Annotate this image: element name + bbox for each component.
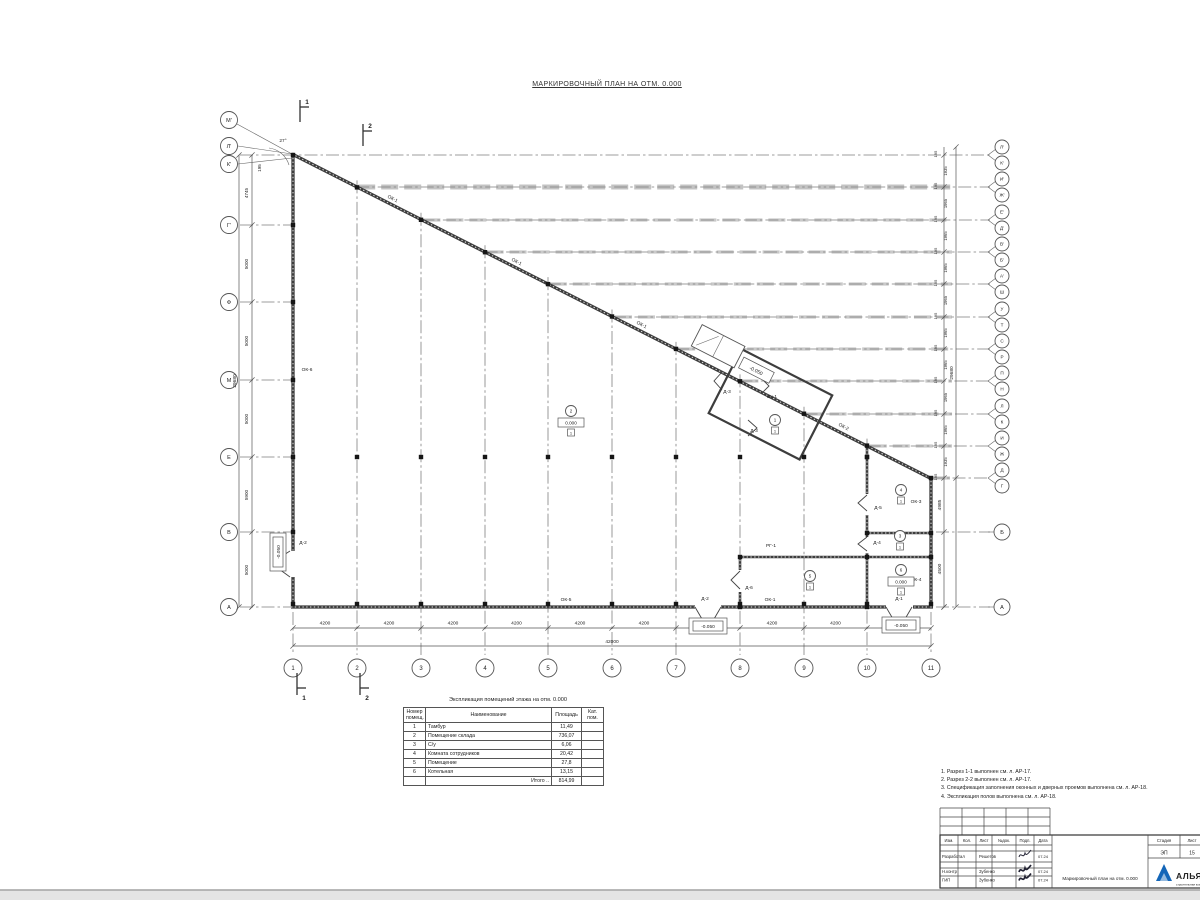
dim-label: 4200 (639, 621, 650, 627)
axis-bubble: Л' (1000, 145, 1004, 150)
column-header: Кат. пом. (582, 708, 604, 723)
table-row: 2Помещение склада736,07 (404, 732, 604, 741)
opening-mark: РГ-1 (766, 543, 776, 549)
opening-mark: Д-6 (745, 585, 753, 591)
opening-mark: Д-2 (701, 596, 709, 602)
stamp-stage-label: Стадия (1157, 838, 1171, 843)
table-cell: 13,15 (552, 768, 582, 777)
stamp-date: 07.24 (1038, 854, 1049, 859)
dim-label: 4200 (384, 621, 395, 627)
axis-bubble: Е' (1000, 210, 1004, 215)
axis-bubble: А' (1000, 274, 1004, 279)
stamp-stage-value: ЭП (1160, 851, 1168, 857)
signature (1019, 874, 1031, 881)
opening-mark: Вн-1 (767, 394, 777, 400)
opening-mark: Д-4 (873, 540, 881, 546)
vestibule: -0.050 (668, 325, 834, 460)
stamp-doc-name: Маркировочный план на отм. 0.000 (1062, 875, 1138, 881)
stamp-name: Зубенко (979, 878, 996, 883)
dim-label: 195 (933, 150, 938, 157)
axis-bubble: Л (1000, 404, 1003, 409)
table-cell (582, 750, 604, 759)
table-cell: 1 (404, 723, 426, 732)
table-cell: 2 (404, 732, 426, 741)
angle-label: 27° (279, 138, 286, 144)
dim-label: 195 (933, 215, 938, 222)
table-cell: С/у (426, 741, 552, 750)
axis-bubble: Б' (1000, 258, 1004, 263)
stamp-header: Лист (979, 838, 988, 843)
dim-label: 195 (257, 164, 262, 172)
mark-labels: ОК-1ОК-1ОК-1ОК-2ОК-3ОК-4ОК-5ОК-1ОК-6РГ-1… (299, 194, 921, 603)
dim-label: 5900 (244, 489, 249, 500)
dim-label: 195 (933, 376, 938, 383)
table-cell: 11,49 (552, 723, 582, 732)
table-cell: 814,99 (552, 777, 582, 786)
dim-label: 195 (933, 182, 938, 189)
table-cell: Итого .. (426, 777, 552, 786)
table-cell: 27,8 (552, 759, 582, 768)
dim-label: 195 (933, 441, 938, 448)
axis-bubble: П (1000, 371, 1003, 376)
room-schedule-table: Номер помещ.НаименованиеПлощадьКат. пом.… (403, 707, 604, 786)
table-cell (582, 768, 604, 777)
notes-block: 1. Разрез 1-1 выполнен см. л. АР-17.2. Р… (941, 768, 1193, 801)
dim-label: 195 (933, 279, 938, 286)
signature (1019, 865, 1031, 872)
table-row: 4Комната сотрудников20,42 (404, 750, 604, 759)
dim-total: 42000 (605, 639, 619, 645)
stamp-header: Кол. (963, 838, 971, 843)
dim-label: 195 (933, 409, 938, 416)
elevation-mark: -0.050 (701, 624, 715, 630)
table-cell (582, 723, 604, 732)
dim-label: 195 (933, 344, 938, 351)
axis-bubble: К' (1000, 161, 1004, 166)
table-cell: 6,06 (552, 741, 582, 750)
opening-mark: Д-1 (895, 596, 903, 602)
table-cell: 4 (404, 750, 426, 759)
opening-mark: ОК-5 (561, 597, 572, 603)
axis-bubble: Т (1001, 323, 1004, 328)
table-cell: Тамбур (426, 723, 552, 732)
table-cell (582, 777, 604, 786)
opening-mark: Д-2 (299, 540, 307, 546)
dim-label: 195 (933, 473, 938, 480)
dim-label: 195 (933, 247, 938, 254)
axis-bubble: И (1000, 436, 1003, 441)
dim-total: 29680 (949, 366, 955, 380)
opening-mark: Д-5 (874, 505, 882, 511)
table-cell: 6 (404, 768, 426, 777)
section-number: 2 (365, 695, 369, 702)
axis-bubble: К (1001, 420, 1004, 425)
title-block: Изм.Кол.Лист№док.Подп.ДатаРазработалРеше… (940, 808, 1200, 888)
column-header: Номер помещ. (404, 708, 426, 723)
room-schedule-title: Экспликация помещений этажа на отм. 0.00… (403, 697, 613, 703)
axis-bubble: Б (1000, 530, 1004, 536)
elevation-mark: -0.050 (894, 623, 908, 629)
dim-label: 5000 (244, 335, 249, 346)
dim-label: 4200 (511, 621, 522, 627)
drawing-sheet: Л'К'195И'Ж'195Е'Д'195В'Б'195А'Ш195УТ195С… (0, 0, 1200, 900)
section-number: 2 (368, 123, 372, 130)
axis-bubble: М' (226, 118, 232, 124)
note-line: 3. Спецификация заполнения оконных и две… (941, 784, 1193, 792)
page-title: МАРКИРОВОЧНЫЙ ПЛАН НА ОТМ. 0.000 (457, 81, 757, 88)
stamp-role: ГИП (942, 878, 950, 883)
axis-bubble: В (227, 530, 231, 536)
axis-bubble: Е (227, 455, 231, 461)
stamp-header: Изм. (945, 838, 954, 843)
dim-label: 4200 (575, 621, 586, 627)
table-header: Номер помещ.НаименованиеПлощадьКат. пом. (404, 708, 604, 723)
axis-bubble: К' (227, 162, 231, 168)
opening-mark: Д-3 (723, 389, 731, 395)
axis-grid-rows: Л'К'195И'Ж'195Е'Д'195В'Б'195А'Ш195УТ195С… (240, 140, 1009, 493)
stamp-role: Н.контр (942, 869, 958, 874)
dim-label: 4200 (448, 621, 459, 627)
table-cell (404, 777, 426, 786)
company-logo-text: АЛЬЯНС (1176, 871, 1200, 881)
axis-bubble: А (227, 605, 231, 611)
elevation-mark: 0.000 (565, 421, 577, 426)
axis-bubble: Д' (1000, 226, 1004, 231)
axis-bubble: И' (1000, 177, 1004, 182)
stamp-date: 07.24 (1038, 878, 1049, 883)
elevation-mark: 0.000 (895, 580, 907, 585)
column-header: Наименование (426, 708, 552, 723)
dim-label: 4200 (767, 621, 778, 627)
note-line: 2. Разрез 2-2 выполнен см. л. АР-17. (941, 776, 1193, 784)
walls (279, 154, 933, 619)
stamp-role: Разработал (942, 854, 965, 859)
stamp-sheet-label: Лист (1187, 838, 1196, 843)
dim-label: 4745 (244, 187, 249, 198)
axis-bubble: Н (1000, 387, 1003, 392)
table-cell: Помещение склада (426, 732, 552, 741)
dim-label: 195 (933, 312, 938, 319)
dim-label: 4985 (937, 499, 943, 510)
stamp-header: Дата (1038, 838, 1048, 843)
axis-bubble: Ш (1000, 290, 1004, 295)
note-line: 1. Разрез 1-1 выполнен см. л. АР-17. (941, 768, 1193, 776)
axis-bubble: М (227, 378, 232, 384)
table-total-row: Итого ..814,99 (404, 777, 604, 786)
dim-total: 29680 (232, 374, 238, 388)
table-cell (582, 732, 604, 741)
note-line: 4. Экспликация полов выполнена см. л. АР… (941, 793, 1193, 801)
dim-label: 4200 (320, 621, 331, 627)
table-cell (582, 741, 604, 750)
table-cell: 20,42 (552, 750, 582, 759)
axis-bubble: Ф (227, 300, 231, 306)
stamp-header: №док. (998, 838, 1010, 843)
stamp-date: 07.24 (1038, 869, 1049, 874)
table-cell: 5 (404, 759, 426, 768)
opening-mark: Д-3 (750, 428, 758, 434)
axis-bubble: А (1000, 605, 1004, 611)
column-header: Площадь (552, 708, 582, 723)
table-cell: Помещение (426, 759, 552, 768)
table-cell (582, 759, 604, 768)
axis-bubble: 11 (928, 666, 935, 672)
opening-mark: ОК-1 (765, 597, 776, 603)
dim-label: 5000 (244, 258, 249, 269)
axis-bubble: Л' (227, 144, 232, 150)
elevation-marks: -0.050-0.050-0.050 (270, 533, 920, 634)
axis-bubble: У (1001, 307, 1004, 312)
axis-bubble: В' (1000, 242, 1004, 247)
axis-bubble: Г' (227, 223, 231, 229)
table-row: 3С/у6,06 (404, 741, 604, 750)
stamp-name: Решетов (979, 854, 997, 859)
opening-mark: ОК-3 (911, 499, 922, 505)
dim-label: 5000 (244, 564, 249, 575)
company-logo-subtext: строительная компания (1176, 883, 1200, 887)
table-cell: Котельная (426, 768, 552, 777)
axis-bubble: Ж' (999, 193, 1004, 198)
table-cell: 736,07 (552, 732, 582, 741)
stamp-sheet-value: 15 (1189, 851, 1195, 857)
stamp-header: Подп. (1019, 838, 1030, 843)
axis-bubble: Р (1000, 355, 1003, 360)
dim-label: 5000 (244, 413, 249, 424)
elevation-mark: -0.050 (276, 545, 282, 559)
stamp-name: Зубенко (979, 869, 996, 874)
table-body: 1Тамбур11,492Помещение склада736,073С/у6… (404, 723, 604, 786)
room-schedule: Экспликация помещений этажа на отм. 0.00… (403, 697, 613, 786)
dim-label: 4500 (937, 563, 943, 574)
section-number: 1 (302, 695, 306, 702)
table-row: 5Помещение27,8 (404, 759, 604, 768)
table-cell: 3 (404, 741, 426, 750)
opening-mark: ОК-6 (302, 367, 313, 373)
dim-label: 4200 (830, 621, 841, 627)
section-number: 1 (305, 99, 309, 106)
axis-bubble: 10 (864, 666, 871, 672)
table-row: 6Котельная13,15 (404, 768, 604, 777)
table-row: 1Тамбур11,49 (404, 723, 604, 732)
table-cell: Комната сотрудников (426, 750, 552, 759)
